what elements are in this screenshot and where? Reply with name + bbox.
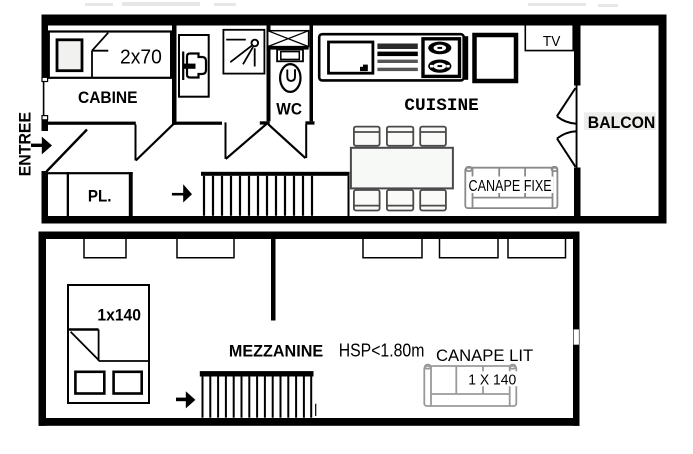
svg-text:1 X 140: 1 X 140 (468, 373, 516, 389)
svg-text:CUISINE: CUISINE (404, 96, 478, 116)
svg-text:MEZZANINE: MEZZANINE (229, 341, 323, 360)
svg-text:CANAPE LIT: CANAPE LIT (436, 346, 533, 365)
svg-text:TV: TV (543, 34, 561, 50)
svg-text:2x70: 2x70 (120, 45, 162, 68)
svg-text:WC: WC (276, 101, 302, 119)
svg-text:CANAPE FIXE: CANAPE FIXE (469, 178, 552, 195)
svg-text:1x140: 1x140 (97, 306, 141, 325)
svg-text:BALCON: BALCON (588, 114, 656, 132)
svg-text:CABINE: CABINE (78, 88, 138, 107)
svg-text:PL.: PL. (88, 188, 112, 206)
svg-text:HSP<1.80m: HSP<1.80m (339, 340, 425, 360)
